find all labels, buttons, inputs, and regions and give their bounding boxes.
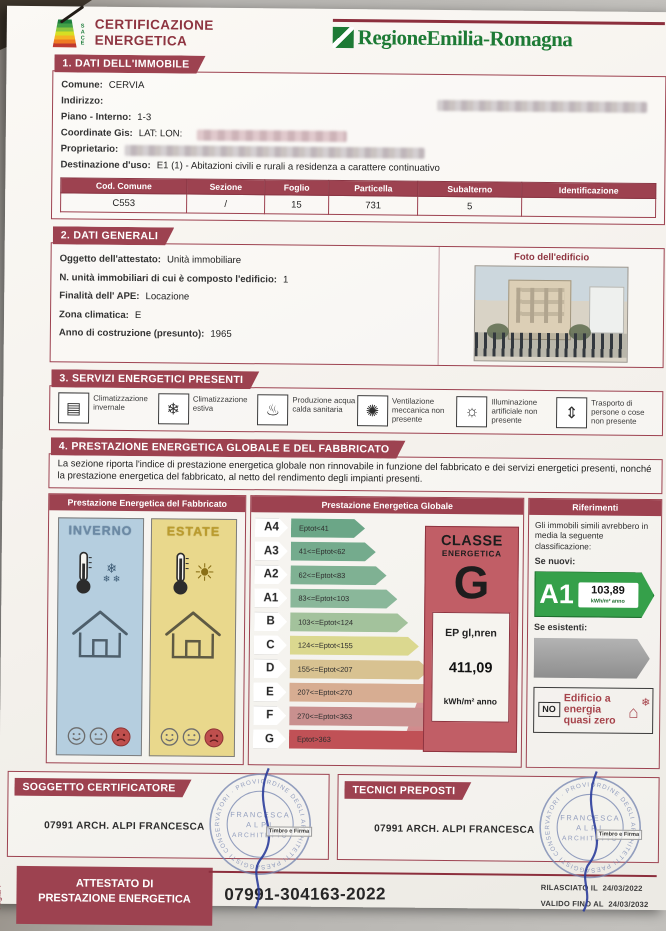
timbro-label: Timbro e Firma bbox=[266, 826, 312, 836]
energy-class-bar: 124<=Eptot<155 bbox=[290, 636, 419, 656]
service-item: ⇕ Trasporto di persone o cose non presen… bbox=[556, 397, 654, 429]
rilasciato-label: RILASCIATO IL bbox=[541, 883, 598, 893]
inverno-title: INVERNO bbox=[68, 523, 132, 538]
estate-card: ESTATE ☀ bbox=[148, 518, 236, 757]
nzeb-box: NO Edificio a energia quasi zero ⌂❄ bbox=[533, 687, 653, 734]
cadastral-value-cell: 731 bbox=[328, 195, 418, 215]
tecnici-title: TECNICI PREPOSTI bbox=[344, 781, 471, 800]
energy-class-tag: A1 bbox=[254, 588, 287, 607]
svg-text:FRANCESCA: FRANCESCA bbox=[560, 813, 620, 823]
riferimenti-panel: Riferimenti Gli immobili simili avrebber… bbox=[526, 498, 663, 769]
energy-class-tag: B bbox=[254, 612, 287, 631]
se-nuovi-value: 103,89 bbox=[580, 585, 636, 599]
ep-value-box: EP gl,nren 411,09 kWh/m² anno bbox=[431, 612, 510, 723]
anno-label: Anno di costruzione (presunto): bbox=[59, 324, 205, 344]
certificate-title: CERTIFICAZIONE ENERGETICA bbox=[95, 17, 214, 49]
rilasciato-date: 24/03/2022 bbox=[603, 883, 643, 892]
se-nuovi-class-badge: A1 103,89 kWh/m² anno bbox=[534, 571, 654, 618]
cadastral-header-cell: Foglio bbox=[265, 180, 329, 196]
photo-side-building bbox=[588, 286, 624, 333]
service-item: ♨ Produzione acqua calda sanitaria bbox=[257, 394, 355, 426]
energy-class-tag: F bbox=[253, 706, 286, 725]
energy-class-tag: A3 bbox=[255, 541, 288, 560]
se-esistenti-label: Se esistenti: bbox=[534, 622, 654, 634]
region-emblem-icon bbox=[333, 27, 354, 48]
energy-class-tag: A2 bbox=[254, 565, 287, 584]
energy-class-bar: 62<=Eptot<83 bbox=[290, 565, 386, 585]
svg-text:FRANCESCA: FRANCESCA bbox=[230, 810, 290, 820]
hot-water-icon: ♨ bbox=[257, 394, 288, 425]
cadastral-header-cell: Cod. Comune bbox=[61, 178, 187, 194]
piano-value: 1-3 bbox=[137, 110, 151, 126]
energy-class-tag: C bbox=[254, 635, 287, 654]
fabbricato-panel: Prestazione Energetica del Fabbricato IN… bbox=[46, 493, 247, 765]
energy-class-result-box: CLASSE ENERGETICA G EP gl,nren 411,09 kW… bbox=[423, 526, 519, 753]
energy-class-tag: E bbox=[253, 682, 286, 701]
service-label: Climatizzazione invernale bbox=[93, 393, 156, 414]
energy-class-bar: Eptot<41 bbox=[291, 518, 365, 538]
house-icon bbox=[159, 604, 226, 663]
energy-scale-icon bbox=[53, 19, 77, 47]
attestato-dates: RILASCIATO IL 24/03/2022 VALIDO FINO AL … bbox=[540, 871, 648, 930]
se-nuovi-unit: kWh/m² anno bbox=[580, 598, 636, 605]
cadastral-value-cell: 5 bbox=[418, 196, 522, 216]
energy-class-bar: 155<=Eptot<207 bbox=[290, 659, 430, 679]
finalita-label: Finalità dell' APE: bbox=[59, 287, 139, 306]
cadastral-value-cell bbox=[521, 197, 655, 217]
energy-class-bar: 83<=Eptot<103 bbox=[290, 589, 397, 609]
sace-letters: SACE bbox=[81, 24, 85, 47]
destinazione-value: E1 (1) - Abitazioni civili e rurali a re… bbox=[157, 158, 440, 177]
ep-value: 411,09 bbox=[449, 660, 493, 676]
energy-class-bar: 207<=Eptot<270 bbox=[289, 683, 440, 703]
gis-value: LAT: LON: bbox=[139, 126, 183, 142]
soggetto-name: 07991 ARCH. ALPI FRANCESCA bbox=[44, 820, 205, 833]
neutral-face-icon bbox=[88, 726, 107, 745]
ventilation-icon: ✺ bbox=[357, 395, 388, 426]
section-servizi: 3. SERVIZI ENERGETICI PRESENTI ▤ Climati… bbox=[49, 368, 664, 436]
sad-face-icon-selected bbox=[203, 727, 223, 747]
proprietario-redacted bbox=[124, 144, 424, 158]
certificate-page: SACE CERTIFICAZIONE ENERGETICA RegioneEm… bbox=[0, 6, 666, 910]
classe-label: CLASSE bbox=[426, 533, 518, 550]
piano-label: Piano - Interno: bbox=[61, 109, 132, 126]
happy-face-icon bbox=[159, 727, 178, 746]
se-nuovi-class: A1 bbox=[535, 581, 574, 608]
thermometer-icon bbox=[73, 549, 93, 595]
n-unita-value: 1 bbox=[283, 271, 289, 290]
cadastral-header-cell: Sezione bbox=[187, 179, 265, 195]
section4-intro: La sezione riporta l'indice di prestazio… bbox=[49, 454, 661, 493]
attestato-code: 07991-304163-2022 bbox=[224, 884, 386, 927]
region-name: RegioneEmilia-Romagna bbox=[358, 25, 573, 52]
anno-value: 1965 bbox=[210, 326, 232, 345]
zona-label: Zona climatica: bbox=[59, 306, 129, 325]
cadastral-value-cell: C553 bbox=[61, 193, 187, 213]
ep-unit: kWh/m² anno bbox=[444, 696, 497, 707]
cadastral-value-cell: / bbox=[187, 194, 265, 214]
tecnici-name: 07991 ARCH. ALPI FRANCESCA bbox=[374, 823, 535, 836]
fabbricato-header: Prestazione Energetica del Fabbricato bbox=[49, 494, 245, 512]
valido-label: VALIDO FINO AL bbox=[541, 899, 604, 909]
destinazione-label: Destinazione d'uso: bbox=[60, 157, 150, 174]
service-item: ▤ Climatizzazione invernale bbox=[58, 392, 156, 424]
comune-value: CERVIA bbox=[109, 78, 145, 94]
indirizzo-redacted bbox=[437, 99, 647, 112]
service-label: Illuminazione artificiale non presente bbox=[491, 396, 554, 425]
riferimenti-text: Gli immobili simili avrebbero in media l… bbox=[535, 520, 655, 553]
oggetto-value: Unità immobiliare bbox=[167, 251, 241, 270]
comune-label: Comune: bbox=[61, 77, 103, 93]
attestato-title: ATTESTATO DI PRESTAZIONE ENERGETICA bbox=[16, 866, 213, 926]
sun-icon: ☀ bbox=[194, 561, 216, 585]
photo-fence bbox=[475, 332, 627, 358]
class-letter: G bbox=[425, 559, 517, 606]
nzeb-text: Edificio a energia quasi zero bbox=[564, 693, 625, 728]
cadastral-header-cell: Subalterno bbox=[418, 181, 522, 197]
estate-title: ESTATE bbox=[167, 524, 221, 539]
finalita-value: Locazione bbox=[145, 288, 189, 307]
globale-panel: Prestazione Energetica Globale A4 Eptot<… bbox=[248, 495, 525, 768]
service-item: ❄ Climatizzazione estiva bbox=[158, 393, 256, 425]
page-number: Pag.1/4 bbox=[0, 885, 3, 910]
region-logo-rule bbox=[333, 19, 665, 25]
service-label: Produzione acqua calda sanitaria bbox=[292, 395, 355, 416]
sad-face-icon-selected bbox=[110, 727, 130, 747]
section-prestazione: 4. PRESTAZIONE ENERGETICA GLOBALE E DEL … bbox=[46, 436, 663, 769]
service-label: Climatizzazione estiva bbox=[193, 394, 256, 415]
section-dati-generali: 2. DATI GENERALI Oggetto dell'attestato:… bbox=[50, 225, 665, 368]
service-item: ✺ Ventilazione meccanica non presente bbox=[357, 395, 455, 427]
happy-face-icon bbox=[66, 726, 85, 745]
proprietario-label: Proprietario: bbox=[61, 141, 119, 158]
inverno-card: INVERNO ❄❄ ❄ bbox=[55, 517, 143, 756]
svg-text:ORDINE DEGLI ARCHITETTI PAESAG: ORDINE DEGLI ARCHITETTI PAESAGGISTI CONS… bbox=[203, 761, 307, 870]
sace-logo: SACE CERTIFICAZIONE ENERGETICA bbox=[53, 16, 214, 49]
service-item: ☼ Illuminazione artificiale non presente bbox=[456, 396, 554, 428]
energy-class-tag: A4 bbox=[255, 518, 288, 537]
soggetto-certificatore-box: SOGGETTO CERTIFICATORE 07991 ARCH. ALPI … bbox=[7, 771, 330, 860]
cooling-icon: ❄ bbox=[158, 393, 189, 424]
section-dati-immobile: 1. DATI DELL'IMMOBILE Comune:CERVIA Indi… bbox=[51, 53, 666, 225]
snowflakes-icon: ❄❄ ❄ bbox=[96, 561, 126, 583]
cadastral-header-cell: Particella bbox=[328, 180, 418, 196]
ep-label: EP gl,nren bbox=[445, 627, 497, 639]
section1-title: 1. DATI DELL'IMMOBILE bbox=[54, 54, 205, 73]
thermometer-icon bbox=[171, 550, 191, 596]
valido-date: 24/03/2032 bbox=[608, 899, 648, 908]
elevator-icon: ⇕ bbox=[556, 397, 587, 428]
section2-title: 2. DATI GENERALI bbox=[53, 226, 175, 245]
riferimenti-header: Riferimenti bbox=[529, 499, 661, 516]
service-label: Ventilazione meccanica non presente bbox=[392, 396, 455, 425]
lighting-icon: ☼ bbox=[456, 396, 487, 427]
nzeb-no-flag: NO bbox=[538, 702, 560, 717]
gis-label: Coordinate Gis: bbox=[61, 125, 133, 142]
gis-redacted bbox=[196, 129, 346, 141]
n-unita-label: N. unità immobiliari di cui è composto l… bbox=[59, 269, 277, 290]
energy-class-bar: 103<=Eptot<124 bbox=[290, 612, 408, 632]
building-photo bbox=[474, 265, 629, 362]
photo-main-building bbox=[508, 280, 571, 341]
house-icon bbox=[66, 603, 133, 662]
radiator-icon: ▤ bbox=[58, 392, 89, 423]
cadastral-header-cell: Identificazione bbox=[522, 182, 656, 198]
section3-title: 3. SERVIZI ENERGETICI PRESENTI bbox=[51, 369, 259, 389]
soggetto-title: SOGGETTO CERTIFICATORE bbox=[14, 778, 191, 798]
zona-value: E bbox=[135, 307, 142, 326]
service-label: Trasporto di persone o cose non presente bbox=[591, 397, 654, 426]
tecnici-preposti-box: TECNICI PREPOSTI 07991 ARCH. ALPI FRANCE… bbox=[337, 774, 660, 863]
se-esistenti-class-badge bbox=[534, 638, 650, 679]
cadastral-value-cell: 15 bbox=[264, 195, 328, 215]
oggetto-label: Oggetto dell'attestato: bbox=[59, 250, 161, 269]
neutral-face-icon bbox=[181, 727, 200, 746]
attestato-bar: Pag.1/4 ATTESTATO DI PRESTAZIONE ENERGET… bbox=[6, 866, 659, 930]
cadastral-table: Cod. ComuneSezioneFoglioParticellaSubalt… bbox=[60, 177, 656, 218]
comfort-smilies bbox=[159, 727, 223, 748]
photo-label: Foto dell'edificio bbox=[446, 251, 658, 264]
energy-class-tag: D bbox=[254, 659, 287, 678]
indirizzo-label: Indirizzo: bbox=[61, 93, 103, 109]
nzeb-house-icon: ⌂❄ bbox=[628, 699, 648, 721]
document-header: SACE CERTIFICAZIONE ENERGETICA RegioneEm… bbox=[53, 16, 666, 53]
svg-text:ORDINE DEGLI ARCHITETTI PAESAG: ORDINE DEGLI ARCHITETTI PAESAGGISTI CONS… bbox=[533, 765, 637, 874]
comfort-smilies bbox=[66, 726, 130, 747]
timbro-label: Timbro e Firma bbox=[596, 829, 642, 839]
energy-class-bar: 41<=Eptot<62 bbox=[291, 542, 376, 562]
region-logo: RegioneEmilia-Romagna bbox=[333, 19, 665, 53]
se-nuovi-label: Se nuovi: bbox=[535, 556, 655, 568]
energy-class-tag: G bbox=[253, 729, 286, 748]
section4-title: 4. PRESTAZIONE ENERGETICA GLOBALE E DEL … bbox=[51, 437, 406, 458]
